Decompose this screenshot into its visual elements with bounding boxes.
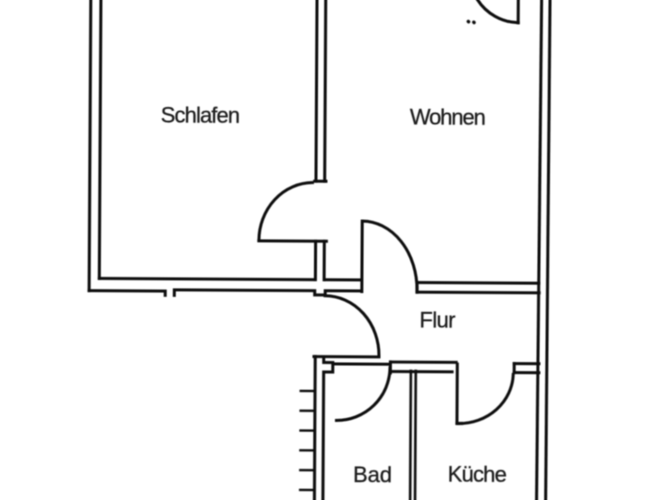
svg-text:Bad: Bad: [353, 462, 392, 487]
svg-text:Schlafen: Schlafen: [161, 102, 240, 127]
svg-text:Wohnen: Wohnen: [410, 104, 485, 129]
svg-text:Flur: Flur: [419, 307, 455, 332]
svg-text:Küche: Küche: [448, 461, 507, 486]
